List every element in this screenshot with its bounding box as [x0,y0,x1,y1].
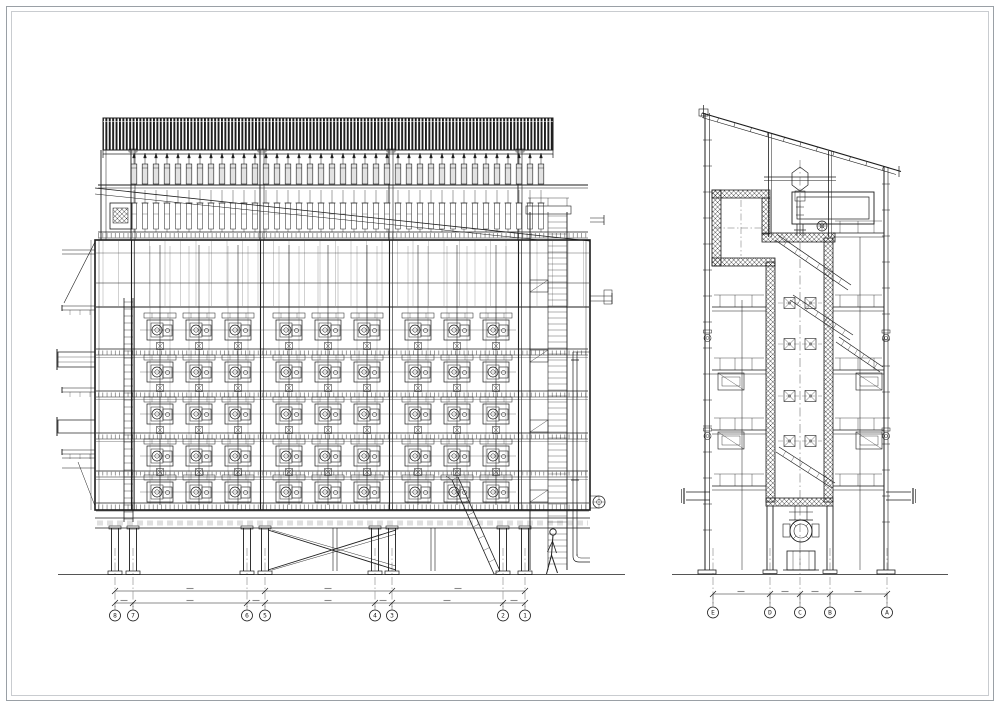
casing-shell [91,240,590,510]
insulator-bushing-row [98,153,588,188]
cross-section-view: EDCBA [672,105,948,618]
pipe-loop [792,192,874,236]
louver-roof-panel [103,118,553,158]
grid-marker: A [882,607,893,618]
grid-marker: E [708,607,719,618]
grid-marker: 3 [387,610,398,621]
left-platforms [62,242,95,506]
stair-tower [526,198,571,570]
hanger-tube-row [96,190,588,238]
grid-marker: 6 [242,610,253,621]
drawing-sheet: 87654321EDCBA [0,0,1000,707]
grid-marker-row: 87654321 [110,610,531,621]
outlet-flange [783,520,819,542]
right-stubs [590,215,612,304]
grid-marker-label: 1 [523,613,527,620]
grid-marker: 5 [260,610,271,621]
grid-marker-label: 6 [245,613,249,620]
grid-marker-label: 3 [390,613,394,620]
grid-marker-label: E [711,610,715,617]
grid-marker: 4 [370,610,381,621]
grid-marker-label: B [828,610,832,617]
grid-marker: C [795,607,806,618]
grid-marker: 2 [498,610,509,621]
grid-marker: D [765,607,776,618]
top-left-equipment-box [110,203,132,229]
grid-marker-label: 2 [501,613,505,620]
under-beam [95,518,590,528]
grid-marker-label: 4 [373,613,377,620]
grid-marker-label: 5 [263,613,267,620]
inlet-nozzles [57,349,95,436]
standpipe [571,352,590,562]
dimension-lines [112,548,528,610]
grid-marker-label: A [885,610,889,617]
grid-marker-label: D [768,610,772,617]
grid-marker-label: 7 [131,613,135,620]
side-elevation-view: 87654321 [57,118,625,621]
grid-marker-label: C [798,610,802,617]
cad-drawing: 87654321EDCBA [0,0,1000,707]
grid-marker-row: EDCBA [708,607,893,618]
roller-supports [704,330,891,440]
pedestal [783,551,819,570]
hatched-duct-walls [712,190,835,506]
cross-bracing [268,530,396,570]
support-columns [108,526,532,575]
grid-marker: B [825,607,836,618]
grid-marker-label: 8 [113,613,117,620]
spoked-fan [817,221,827,231]
grid-marker: 7 [128,610,139,621]
drive-motor [590,496,605,508]
grid-marker: 1 [520,610,531,621]
grid-marker: 8 [110,610,121,621]
